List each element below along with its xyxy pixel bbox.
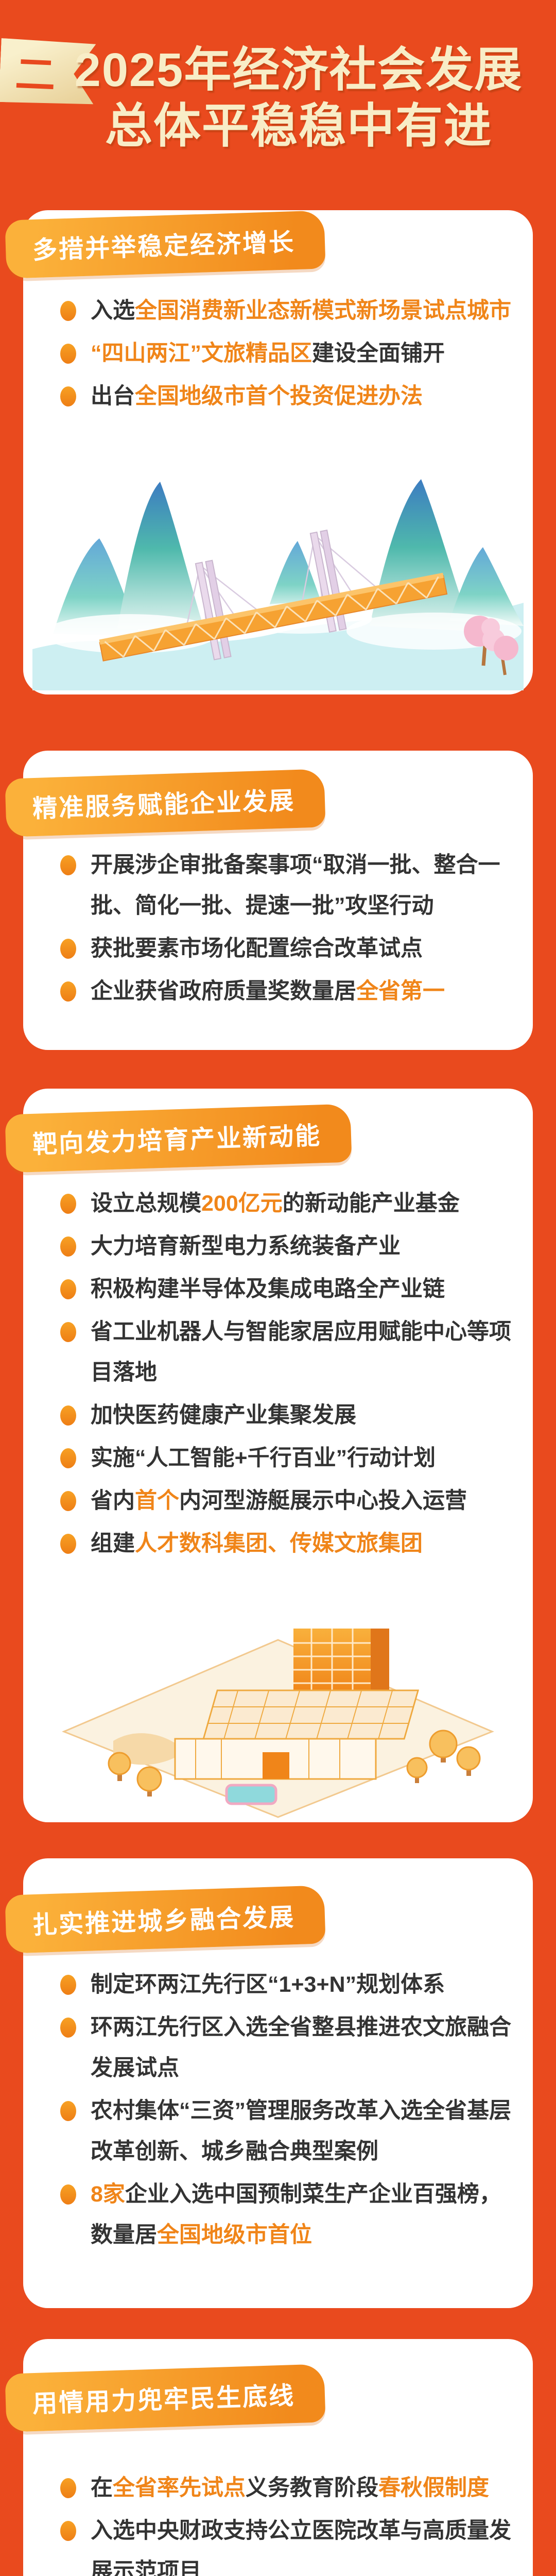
section-card-enterprise-service: 精准服务赋能企业发展 开展涉企审批备案事项“取消一批、整合一批、简化一批、提速一… (23, 751, 533, 1050)
bullet-text: 开展涉企审批备案事项“取消一批、整合一批、简化一批、提速一批”攻坚行动 (91, 845, 511, 926)
section-header-badge: 精准服务赋能企业发展 (5, 769, 325, 837)
poster-page: { "page": { "bg_color": "#E94A1E", "acce… (0, 0, 556, 2576)
bullet-list: 在全省率先试点义务教育阶段春秋假制度入选中央财政支持公立医院改革与高质量发展示范… (60, 2468, 511, 2576)
bullet-dot-icon (60, 2184, 76, 2205)
bullet-item: 设立总规模200亿元的新动能产业基金 (60, 1183, 511, 1224)
bullet-dot-icon (60, 2101, 76, 2121)
section-header-badge: 靶向发力培育产业新动能 (5, 1104, 352, 1173)
bullet-dot-icon (60, 1279, 76, 1299)
bullet-dot-icon (60, 1534, 76, 1554)
section-header-badge: 用情用力兜牢民生底线 (5, 2364, 325, 2432)
bullet-text: 积极构建半导体及集成电路全产业链 (91, 1269, 511, 1310)
bullet-item: 加快医药健康产业集聚发展 (60, 1395, 511, 1436)
bullet-item: 开展涉企审批备案事项“取消一批、整合一批、简化一批、提速一批”攻坚行动 (60, 845, 511, 926)
bullet-text: 出台全国地级市首个投资促进办法 (91, 376, 511, 417)
page-title-line1: 2025年经济社会发展 (67, 42, 530, 98)
bullet-item: 企业获省政府质量奖数量居全省第一 (60, 971, 511, 1012)
bullet-item: 在全省率先试点义务教育阶段春秋假制度 (60, 2468, 511, 2509)
bullet-text: 在全省率先试点义务教育阶段春秋假制度 (91, 2468, 511, 2509)
section-card-urban-rural: 扎实推进城乡融合发展 制定环两江先行区“1+3+N”规划体系环两江先行区入选全省… (23, 1858, 533, 2308)
bullet-dot-icon (60, 301, 76, 321)
bullet-dot-icon (60, 1236, 76, 1257)
bullet-dot-icon (60, 1448, 76, 1468)
bullet-text: 入选全国消费新业态新模式新场景试点城市 (91, 291, 511, 331)
bullet-dot-icon (60, 2018, 76, 2038)
bullet-list: 开展涉企审批备案事项“取消一批、整合一批、简化一批、提速一批”攻坚行动获批要素市… (60, 845, 511, 1014)
campus-building-illustration (51, 1622, 505, 1819)
mountains-bridge-illustration (32, 453, 524, 690)
bullet-item: 省内首个内河型游艇展示中心投入运营 (60, 1481, 511, 1521)
section-header-badge: 多措并举稳定经济增长 (5, 210, 325, 278)
section-card-livelihood: 用情用力兜牢民生底线 在全省率先试点义务教育阶段春秋假制度入选中央财政支持公立医… (23, 2339, 533, 2576)
section-number: 二 (14, 42, 57, 101)
bullet-item: 积极构建半导体及集成电路全产业链 (60, 1269, 511, 1310)
bullet-list: 制定环两江先行区“1+3+N”规划体系环两江先行区入选全省整县推进农文旅融合发展… (60, 1964, 511, 2258)
section-card-economic-growth: 多措并举稳定经济增长 入选全国消费新业态新模式新场景试点城市“四山两江”文旅精品… (23, 210, 533, 694)
bullet-text: 制定环两江先行区“1+3+N”规划体系 (91, 1964, 511, 2005)
bullet-text: 实施“人工智能+千行百业”行动计划 (91, 1438, 511, 1479)
page-title: 2025年经济社会发展 总体平稳稳中有进 (67, 42, 530, 154)
bullet-dot-icon (60, 2521, 76, 2541)
bullet-dot-icon (60, 1975, 76, 1995)
mountains-bridge-icon (32, 453, 524, 690)
bullet-list: 入选全国消费新业态新模式新场景试点城市“四山两江”文旅精品区建设全面铺开出台全国… (60, 291, 511, 419)
campus-building-icon (51, 1622, 505, 1819)
bullet-item: 省工业机器人与智能家居应用赋能中心等项目落地 (60, 1312, 511, 1393)
bullet-dot-icon (60, 2478, 76, 2498)
bullet-text: 企业获省政府质量奖数量居全省第一 (91, 971, 511, 1012)
bullet-dot-icon (60, 344, 76, 364)
bullet-item: 农村集体“三资”管理服务改革入选全省基层改革创新、城乡融合典型案例 (60, 2091, 511, 2172)
bullet-dot-icon (60, 386, 76, 406)
page-title-line2: 总体平稳稳中有进 (67, 98, 530, 155)
bullet-dot-icon (60, 1405, 76, 1426)
bullet-item: 实施“人工智能+千行百业”行动计划 (60, 1438, 511, 1479)
bullet-dot-icon (60, 1322, 76, 1342)
bullet-item: 入选中央财政支持公立医院改革与高质量发展示范项目 (60, 2511, 511, 2576)
bullet-text: 组建人才数科集团、传媒文旅集团 (91, 1523, 511, 1564)
section-card-new-industry: 靶向发力培育产业新动能 设立总规模200亿元的新动能产业基金大力培育新型电力系统… (23, 1089, 533, 1822)
bullet-text: 加快医药健康产业集聚发展 (91, 1395, 511, 1436)
bullet-text: “四山两江”文旅精品区建设全面铺开 (91, 333, 511, 374)
bullet-text: 8家企业入选中国预制菜生产企业百强榜，数量居全国地级市首位 (91, 2174, 511, 2256)
bullet-text: 获批要素市场化配置综合改革试点 (91, 928, 511, 969)
bullet-item: 8家企业入选中国预制菜生产企业百强榜，数量居全国地级市首位 (60, 2174, 511, 2256)
bullet-item: 环两江先行区入选全省整县推进农文旅融合发展试点 (60, 2007, 511, 2089)
bullet-text: 设立总规模200亿元的新动能产业基金 (91, 1183, 511, 1224)
bullet-item: 大力培育新型电力系统装备产业 (60, 1226, 511, 1267)
bullet-item: 入选全国消费新业态新模式新场景试点城市 (60, 291, 511, 331)
bullet-text: 农村集体“三资”管理服务改革入选全省基层改革创新、城乡融合典型案例 (91, 2091, 511, 2172)
bullet-text: 省工业机器人与智能家居应用赋能中心等项目落地 (91, 1312, 511, 1393)
bullet-dot-icon (60, 1491, 76, 1511)
section-header-badge: 扎实推进城乡融合发展 (5, 1885, 325, 1953)
bullet-dot-icon (60, 855, 76, 875)
bullet-text: 环两江先行区入选全省整县推进农文旅融合发展试点 (91, 2007, 511, 2089)
bullet-dot-icon (60, 939, 76, 959)
bullet-item: 获批要素市场化配置综合改革试点 (60, 928, 511, 969)
bullet-list: 设立总规模200亿元的新动能产业基金大力培育新型电力系统装备产业积极构建半导体及… (60, 1183, 511, 1566)
bullet-dot-icon (60, 981, 76, 1002)
bullet-text: 省内首个内河型游艇展示中心投入运营 (91, 1481, 511, 1521)
bullet-dot-icon (60, 1194, 76, 1214)
bullet-item: 出台全国地级市首个投资促进办法 (60, 376, 511, 417)
bullet-item: 制定环两江先行区“1+3+N”规划体系 (60, 1964, 511, 2005)
bullet-item: 组建人才数科集团、传媒文旅集团 (60, 1523, 511, 1564)
bullet-item: “四山两江”文旅精品区建设全面铺开 (60, 333, 511, 374)
bullet-text: 大力培育新型电力系统装备产业 (91, 1226, 511, 1267)
bullet-text: 入选中央财政支持公立医院改革与高质量发展示范项目 (91, 2511, 511, 2576)
